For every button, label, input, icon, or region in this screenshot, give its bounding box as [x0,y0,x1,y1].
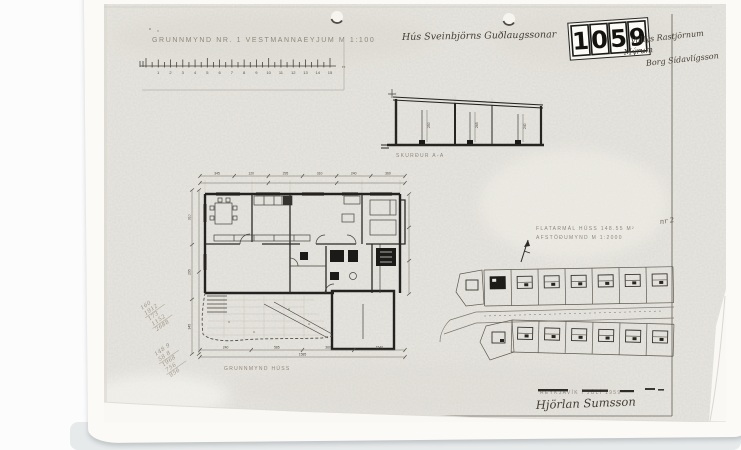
plan-dim: 360 [325,345,331,349]
plan-dim: 345 [214,171,220,175]
section-label: SKURÐUR A-A [396,153,444,159]
plan-dim: 585 [274,345,280,349]
area-note-line2: AFSTÖÐUMYND M 1:2000 [536,234,623,241]
ruler-number: 14 [316,70,321,75]
photo-left-edge [104,4,107,422]
ruler-number: 10 [266,70,271,75]
plan-dim: 310 [317,171,323,175]
ink-strike [538,389,568,391]
stamp-digit: 1 [571,27,590,56]
ink-dot [149,28,151,30]
plan-dim: 240 [351,171,357,175]
plan-dim: 345 [187,324,191,330]
area-note-line1: FLATARMÁL HÚSS 148.55 M² [536,225,635,232]
plan-dim: 1585 [299,352,307,356]
ink-strike [582,390,608,392]
drawing-title-printed: GRUNNMYND NR. 1 VESTMANNAEYJUM M 1:100 [152,37,375,44]
plan-dim: 310 [187,214,191,220]
plan-dim: 1540 [376,345,384,349]
plan-dim: 295 [283,171,289,175]
plan-dim: 295 [187,269,191,275]
ink-dot [157,30,158,31]
plan-label: GRUNNMYND HÚSS [224,365,291,372]
ruler-number: 12 [291,70,296,75]
ruler-number: 15 [328,70,333,75]
section-dim: 265 [475,122,479,128]
section-dim: 240 [523,123,527,129]
scanned-archive-page: GRUNNMYND NR. 1 VESTMANNAEYJUM M 1:100 H… [0,0,741,450]
plan-dim: 120 [248,171,254,175]
ruler-number: 13 [303,70,308,75]
subject-house-footprint [490,277,505,289]
chimney [300,252,308,260]
ink-mark [645,388,655,390]
stamp-digit: 0 [590,25,609,54]
plan-dim: 240 [223,345,229,349]
ink-mark [658,389,664,391]
drawing-photograph: GRUNNMYND NR. 1 VESTMANNAEYJUM M 1:100 H… [104,4,726,422]
plan-dim: 360 [385,171,391,175]
ink-strike [620,390,634,392]
section-dim: 250 [427,122,431,128]
